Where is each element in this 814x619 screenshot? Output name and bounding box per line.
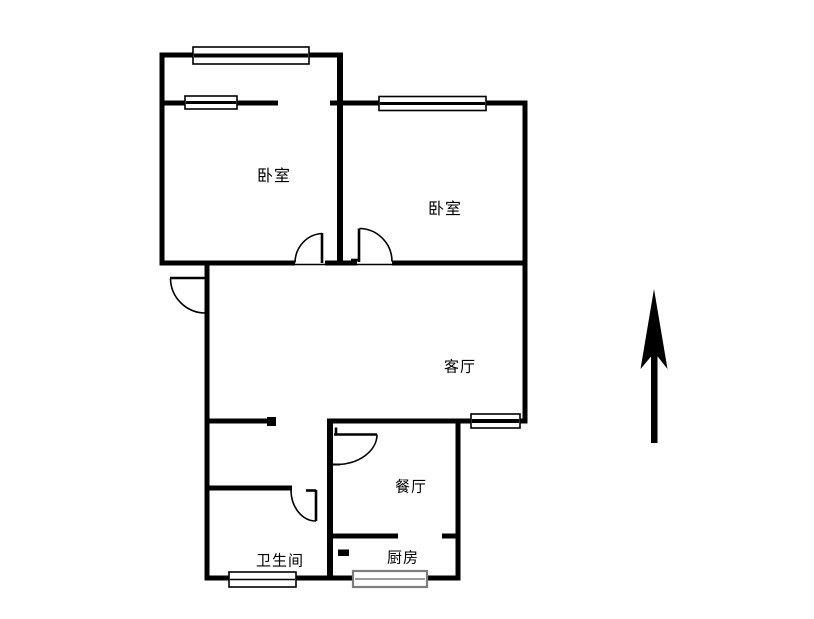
walls xyxy=(160,53,528,581)
dining-room-label: 餐厅 xyxy=(395,476,427,497)
kitchen-fixture-dash xyxy=(338,550,349,557)
kitchen-label: 厨房 xyxy=(387,547,419,568)
windows xyxy=(185,47,520,587)
bedroom2-label: 卧室 xyxy=(428,195,462,219)
living-room-label: 客厅 xyxy=(444,356,476,377)
living-room-window-icon xyxy=(471,414,520,428)
floor-plan-drawing xyxy=(0,0,814,619)
bedroom2-window-icon xyxy=(379,97,486,111)
bedroom1-door-icon xyxy=(295,233,322,263)
north-arrow-icon xyxy=(641,289,668,443)
bathroom-window-icon xyxy=(229,572,296,587)
doors xyxy=(170,229,392,522)
floor-plan: 卧室 卧室 客厅 餐厅 卫生间 厨房 xyxy=(0,0,814,619)
wall-end-cap xyxy=(267,417,276,426)
bedroom1-window-icon xyxy=(185,96,237,109)
entry-door-icon xyxy=(170,278,205,313)
bathroom-label: 卫生间 xyxy=(256,550,304,571)
balcony-bay-window-icon xyxy=(193,47,309,64)
kitchen-window-icon xyxy=(353,571,427,587)
dining-room-door-icon xyxy=(331,428,377,465)
bathroom-door-icon xyxy=(291,490,316,521)
bedroom1-label: 卧室 xyxy=(257,162,291,186)
bedroom2-door-icon xyxy=(351,229,392,263)
